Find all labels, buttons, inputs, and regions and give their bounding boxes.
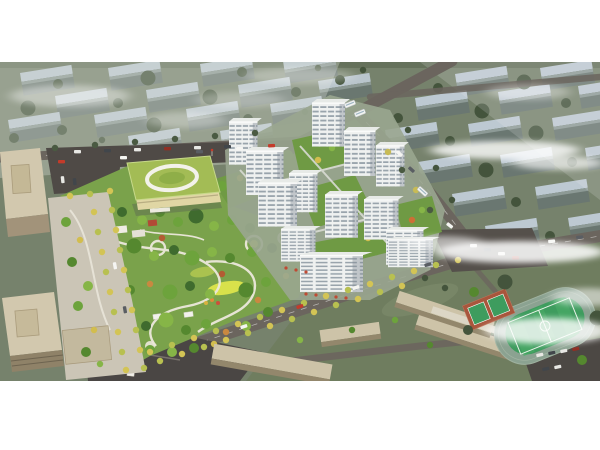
street-tree (91, 209, 97, 215)
street-tree (289, 316, 295, 322)
tree (419, 207, 425, 213)
tree (141, 321, 151, 331)
street-tree (52, 145, 58, 151)
street-tree (235, 321, 241, 327)
street-tree (427, 207, 433, 213)
tree (469, 287, 479, 297)
parked-car (61, 176, 65, 183)
park-pavilion (184, 311, 194, 317)
street-tree (119, 349, 125, 355)
tree (81, 347, 91, 357)
tree (449, 197, 455, 203)
street-tree (179, 351, 185, 357)
street-tree (355, 296, 361, 302)
tree (360, 67, 366, 73)
street-tree (67, 193, 73, 199)
street-tree (113, 227, 119, 233)
tree (225, 253, 235, 263)
cloud (513, 156, 600, 170)
aerial-masterplan-render: Aerial rendering of a residential master… (0, 0, 600, 450)
street-tree (107, 289, 113, 295)
tree (181, 325, 191, 335)
awning (294, 268, 297, 271)
tree (77, 237, 83, 243)
street-tree (389, 274, 395, 280)
street-tree (279, 307, 285, 313)
street-tree (377, 289, 383, 295)
tree (263, 307, 273, 317)
tree (405, 127, 411, 133)
tree (219, 271, 225, 277)
car (196, 150, 203, 153)
tree (73, 301, 83, 311)
street-tree (132, 139, 138, 145)
car (120, 156, 127, 159)
street-tree (147, 349, 153, 355)
tree (127, 239, 142, 254)
residential-tower (344, 127, 380, 176)
tree (349, 327, 355, 333)
tree (223, 329, 229, 335)
tree (169, 245, 179, 255)
street-tree (92, 142, 98, 148)
street-tree (191, 335, 197, 341)
parked-car (134, 148, 141, 151)
tree (61, 217, 71, 227)
office-roof-inset (11, 164, 31, 193)
tree (205, 289, 215, 299)
street-tree (169, 342, 175, 348)
street-tree (125, 287, 131, 293)
cloud (195, 92, 285, 108)
tree (163, 285, 178, 300)
tree (239, 283, 254, 298)
residential-tower (325, 191, 363, 238)
tree (422, 275, 428, 281)
street-tree (201, 344, 207, 350)
street-tree (385, 149, 391, 155)
street-tree (213, 328, 219, 334)
street-tree (399, 167, 405, 173)
tree (261, 277, 271, 287)
cloud (145, 112, 225, 128)
awning (304, 270, 307, 273)
awning (334, 295, 337, 298)
street-tree (245, 330, 251, 336)
tree (297, 337, 303, 343)
tree (498, 275, 513, 290)
flag (211, 149, 214, 152)
tree (207, 247, 217, 257)
tree (209, 221, 219, 231)
render-canvas (0, 0, 600, 450)
playground-patch (204, 301, 208, 305)
tree (167, 347, 177, 357)
tree (83, 281, 93, 291)
tree (433, 165, 439, 171)
parked-car (164, 147, 171, 150)
street-tree (223, 337, 229, 343)
tree (185, 281, 195, 291)
commercial-slab (300, 252, 372, 292)
street-tree (137, 347, 143, 353)
tree (255, 297, 261, 303)
awning (304, 292, 307, 295)
tree (67, 257, 77, 267)
residential-tower (376, 142, 409, 187)
tree (442, 285, 448, 291)
amenity-building (148, 219, 158, 226)
cloud (245, 68, 355, 84)
car (58, 160, 65, 163)
parked-car (73, 178, 77, 185)
parked-car (194, 146, 201, 149)
street-tree (399, 283, 405, 289)
awning (314, 293, 317, 296)
car (576, 235, 583, 239)
tree (137, 215, 147, 225)
tree (409, 217, 415, 223)
cloud (404, 236, 484, 250)
tree (577, 355, 587, 365)
street-tree (109, 207, 115, 213)
car (236, 147, 243, 150)
parked-car (104, 149, 111, 152)
street-tree (87, 191, 93, 197)
cloud (10, 85, 130, 107)
street-tree (99, 249, 105, 255)
tree (201, 319, 211, 329)
street-tree (311, 309, 317, 315)
street-tree (367, 281, 373, 287)
cloud (486, 84, 570, 100)
street-tree (345, 287, 351, 293)
street-tree (333, 302, 339, 308)
street-tree (133, 327, 139, 333)
street-tree (121, 267, 127, 273)
awning (284, 266, 287, 269)
office-annex (62, 326, 111, 365)
tree (427, 342, 433, 348)
tree (117, 207, 127, 217)
amenity-building (132, 229, 146, 237)
street-tree (123, 367, 129, 373)
tree (315, 157, 321, 163)
street-tree (115, 329, 121, 335)
street-tree (257, 314, 263, 320)
tree (392, 317, 398, 323)
street-tree (95, 229, 101, 235)
street-tree (323, 293, 329, 299)
tree (189, 343, 199, 353)
street-tree (411, 268, 417, 274)
office-roof-inset (15, 309, 39, 337)
street-tree (157, 358, 163, 364)
tree (511, 197, 521, 207)
residential-tower (258, 179, 303, 227)
tree (463, 325, 473, 335)
tree (173, 217, 183, 227)
street-tree (252, 130, 258, 136)
street-tree (212, 133, 218, 139)
street-tree (267, 323, 273, 329)
street-tree (141, 365, 147, 371)
tree (97, 361, 103, 367)
tree (159, 235, 165, 241)
street-tree (172, 136, 178, 142)
playground-patch (216, 301, 220, 305)
street-tree (117, 247, 123, 253)
street-tree (433, 262, 439, 268)
awning (344, 296, 347, 299)
parked-car (224, 145, 231, 148)
parked-car (74, 150, 81, 153)
street-tree (129, 307, 135, 313)
tree (159, 313, 174, 328)
street-tree (103, 269, 109, 275)
tree (147, 281, 153, 287)
car (268, 144, 275, 148)
tree (185, 251, 200, 266)
tree (149, 251, 159, 261)
tree (479, 163, 494, 178)
tree (91, 327, 97, 333)
street-tree (111, 309, 117, 315)
street-tree (107, 188, 113, 194)
